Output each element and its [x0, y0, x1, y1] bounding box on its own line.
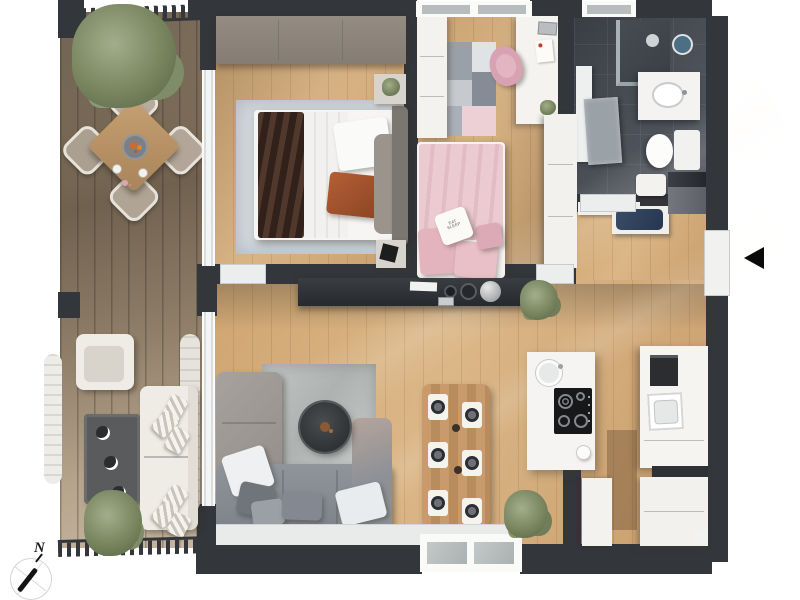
wall-notch: [692, 530, 707, 543]
desk-laptop: [538, 21, 558, 35]
bench-cushion-navy: [616, 209, 663, 230]
plate: [465, 504, 479, 518]
cabinet-seam: [644, 511, 704, 512]
burner: [576, 392, 585, 401]
window-bedroom2-top: [416, 1, 532, 17]
laundry-basket: [636, 174, 666, 196]
place-setting: [428, 394, 448, 420]
toilet-cistern: [674, 130, 700, 170]
plate: [431, 400, 445, 414]
plate: [431, 448, 445, 462]
bedroom2-patch-rug: [444, 42, 496, 136]
compass: N: [8, 552, 54, 598]
burner: [558, 394, 573, 409]
wall-balcony-mid-stub: [58, 292, 80, 318]
burner: [574, 414, 588, 428]
cabinet-dark-seam: [652, 466, 708, 477]
shower-head: [646, 34, 659, 47]
wardrobe-seam: [548, 164, 573, 165]
flower-sprig: [122, 180, 128, 186]
rug-patch: [444, 80, 472, 106]
bedroom1-wardrobe: [216, 16, 406, 64]
window-pane: [427, 542, 467, 564]
kitchen-faucet: [558, 364, 563, 369]
wardrobe-seam: [420, 56, 444, 57]
bedroom1-door-sill: [220, 264, 266, 284]
burner: [558, 415, 570, 427]
cooktop-controls: [588, 396, 590, 398]
wardrobe-seam: [548, 216, 573, 217]
bed-throw-blanket: [258, 112, 304, 238]
wall-bottom-right: [520, 544, 712, 574]
built-in-oven: [650, 355, 678, 386]
window-pane: [422, 5, 470, 14]
compass-north-label: N: [34, 540, 45, 557]
entrance-arrow-icon: [744, 247, 764, 269]
bathroom-vanity: [638, 72, 700, 120]
kitchen-fridge: [582, 478, 612, 546]
plate: [431, 496, 445, 510]
outdoor-cup: [96, 426, 110, 440]
sofa-seam: [144, 456, 194, 458]
rug-patch: [462, 106, 496, 136]
chair-seat: [493, 52, 519, 81]
cooktop: [554, 388, 592, 434]
place-setting: [462, 450, 482, 476]
place-setting: [428, 490, 448, 516]
coffee-cup: [112, 164, 122, 174]
coffee-table-round: [300, 402, 350, 452]
window-living-bottom: [420, 534, 522, 572]
round-mirror: [672, 34, 693, 55]
decor-tray: [438, 297, 454, 306]
decor-bowl: [460, 283, 477, 300]
sofa-seam: [222, 422, 276, 424]
place-setting: [428, 442, 448, 468]
window-pane: [587, 5, 631, 14]
wall-kitchen-stub: [563, 470, 581, 546]
table-copper-handle: [320, 422, 330, 432]
wardrobe-seam: [342, 20, 343, 60]
cabinet-seam: [644, 440, 704, 441]
window-bathroom-top: [582, 1, 636, 17]
plate: [465, 408, 479, 422]
window-bedroom1-balcony: [202, 70, 215, 266]
bed-headboard: [392, 106, 408, 246]
bedroom2-wardrobe: [417, 16, 447, 138]
wall-bottom-left: [196, 544, 422, 574]
fruit-bowl: [130, 142, 137, 149]
counter-knob: [577, 446, 590, 459]
coffee-cup: [138, 168, 148, 178]
wardrobe-seam: [278, 20, 279, 60]
memo-pin: [538, 43, 542, 47]
wash-basin: [652, 82, 684, 108]
toilet: [646, 134, 673, 168]
sofa-cushion-center: [282, 491, 323, 520]
faucet: [682, 90, 687, 95]
bath-mat: [584, 97, 623, 165]
window-pane: [474, 542, 514, 564]
sofa-backrest: [188, 386, 198, 530]
remote-on-sideboard: [410, 282, 437, 292]
kitchen-wall-sink: [647, 392, 684, 431]
hall-closet: [668, 187, 706, 214]
bed2-pillow-pink-small: [474, 222, 504, 250]
wardrobe-seam: [420, 96, 444, 97]
place-setting: [462, 498, 482, 524]
entry-door-threshold: [704, 230, 730, 296]
window-pane: [478, 5, 526, 14]
place-setting: [462, 402, 482, 428]
bathroom-door-sill: [580, 194, 636, 212]
outdoor-cup: [104, 456, 118, 470]
decor-sphere: [480, 281, 501, 302]
desk-memo-card: [535, 39, 554, 63]
wall-top-c: [636, 0, 712, 18]
rug-patch: [444, 42, 472, 80]
wall-right-lower: [706, 294, 728, 562]
bedroom2-tall-wardrobe: [544, 114, 577, 268]
window-living-balcony: [202, 312, 215, 506]
plate: [465, 456, 479, 470]
armchair-cushion: [84, 346, 124, 382]
wall-stub-bedroom1-top: [200, 16, 216, 70]
floor-plan-canvas: EAT SLEEP: [0, 0, 800, 600]
outdoor-armchair: [76, 334, 134, 390]
sink-basin: [653, 399, 678, 424]
table-candles: [452, 424, 460, 432]
balcony-awning-roll: [44, 354, 62, 484]
